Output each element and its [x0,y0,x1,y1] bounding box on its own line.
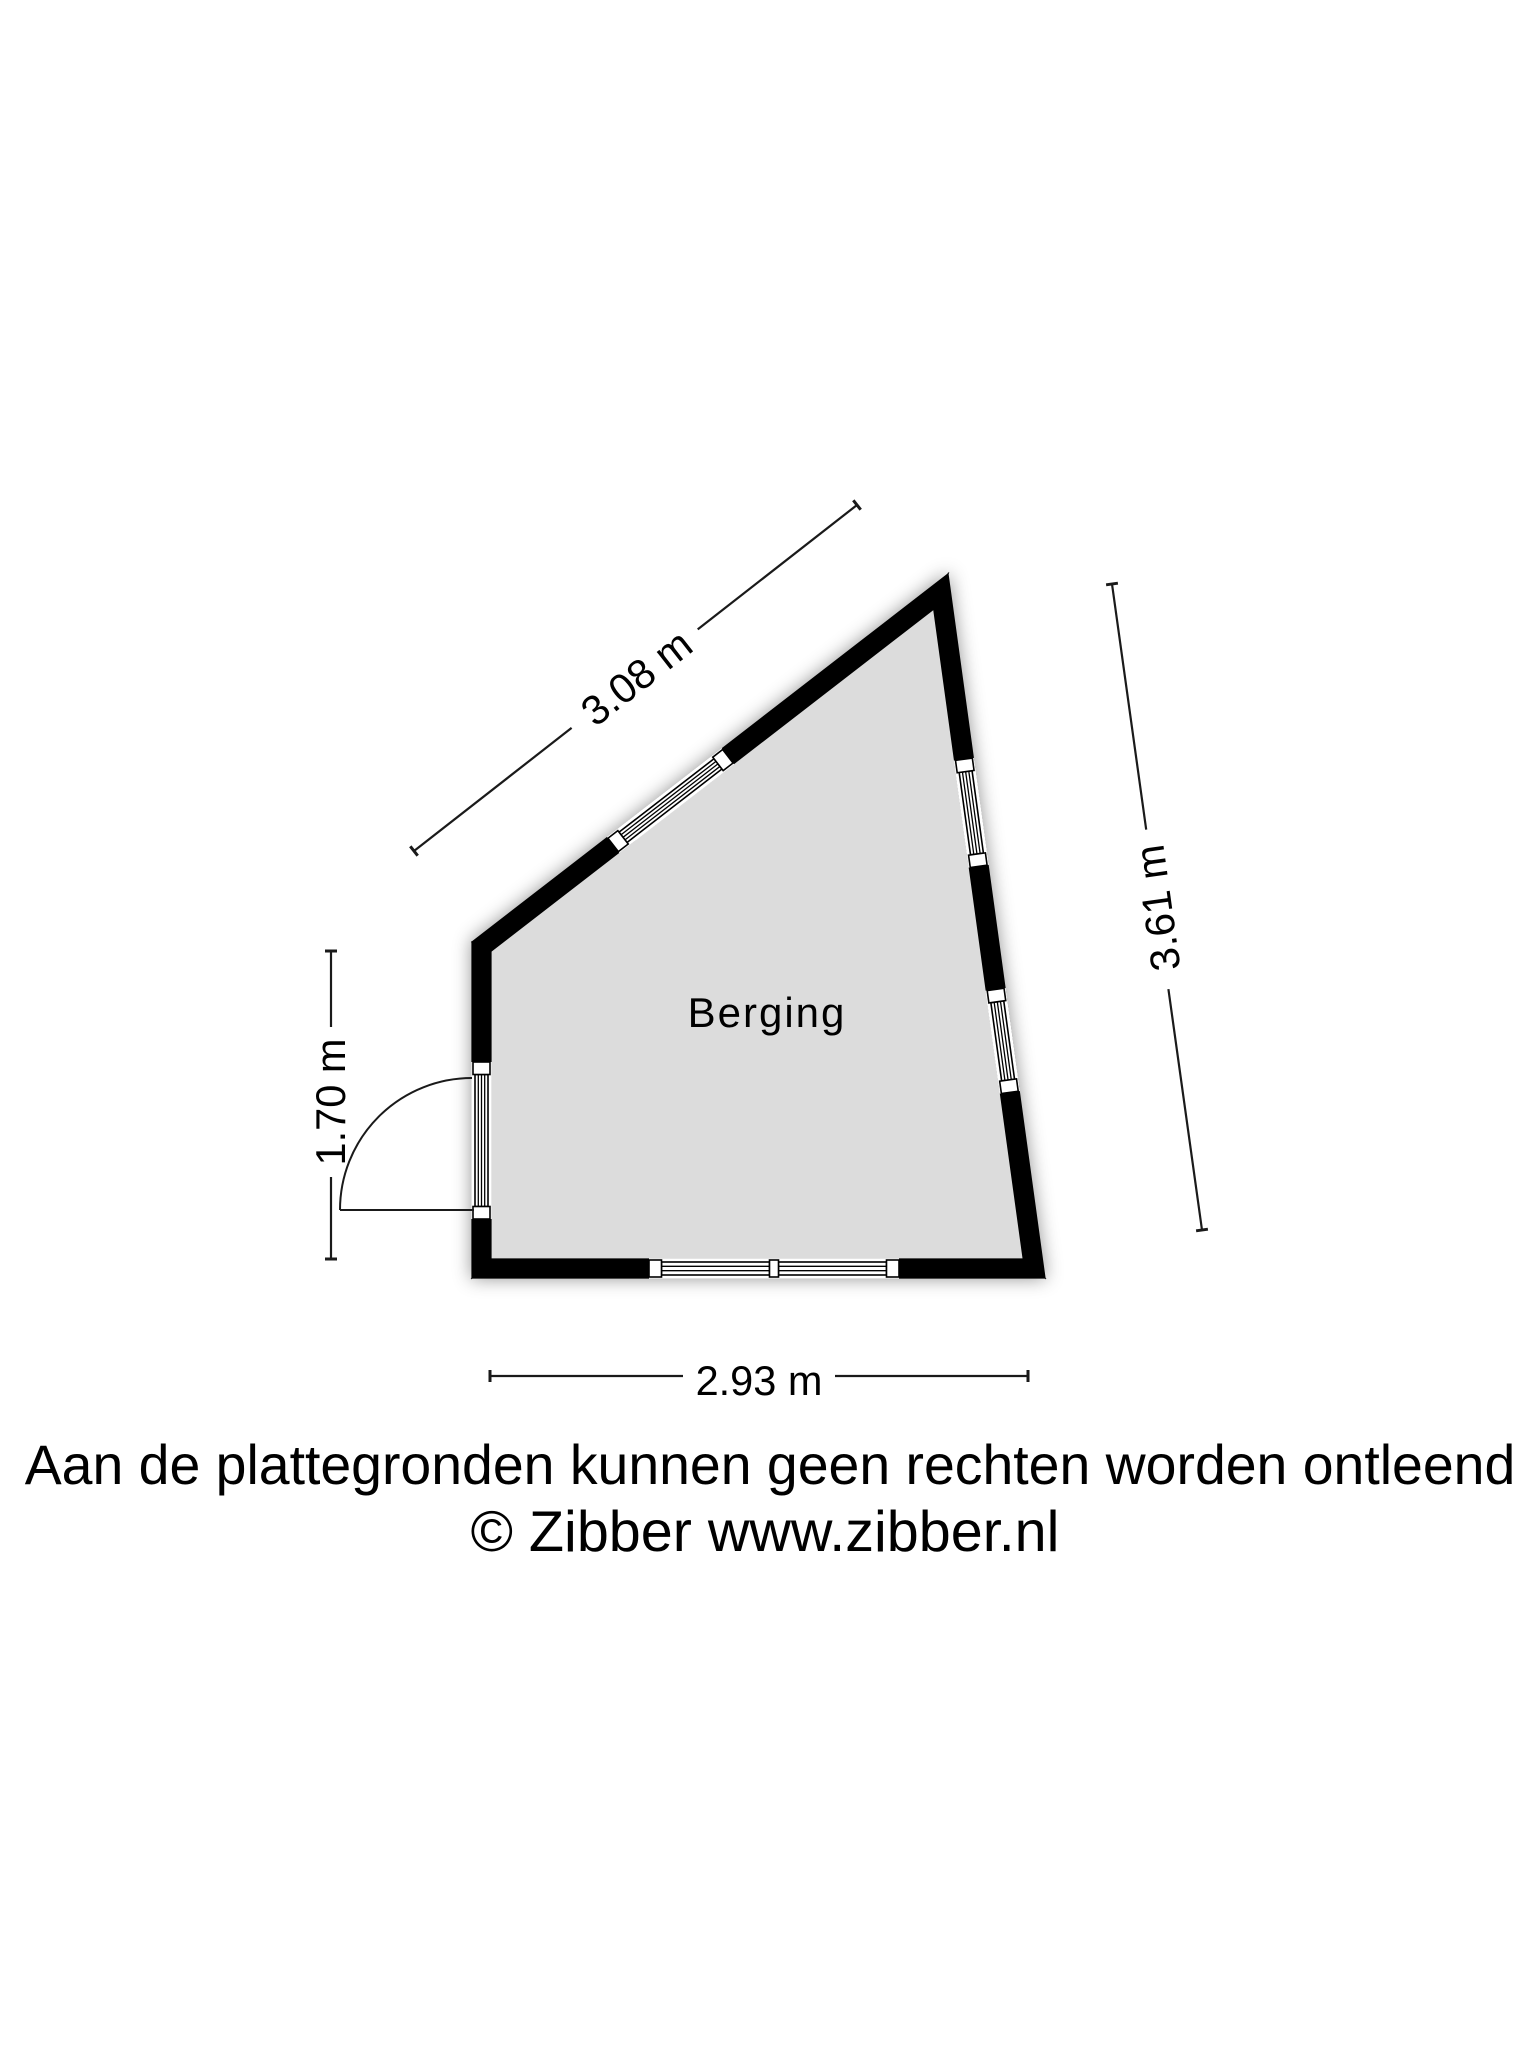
svg-text:3.61 m: 3.61 m [1125,842,1189,974]
svg-text:2.93 m: 2.93 m [696,1357,823,1404]
svg-text:3.08 m: 3.08 m [572,620,701,735]
svg-text:Aan de plattegronden kunnen ge: Aan de plattegronden kunnen geen rechten… [25,1434,1516,1496]
svg-text:1.70 m: 1.70 m [307,1039,354,1166]
svg-text:Berging: Berging [688,989,847,1036]
svg-text:© Zibber www.zibber.nl: © Zibber www.zibber.nl [471,1500,1060,1564]
